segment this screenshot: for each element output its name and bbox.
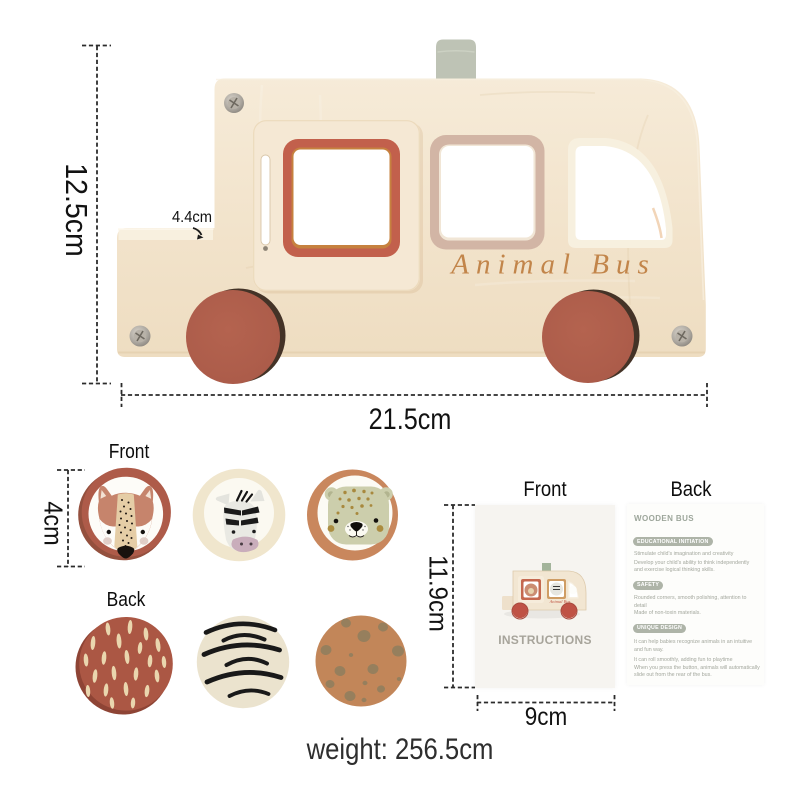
svg-text:Animal Bus: Animal Bus xyxy=(449,249,656,281)
